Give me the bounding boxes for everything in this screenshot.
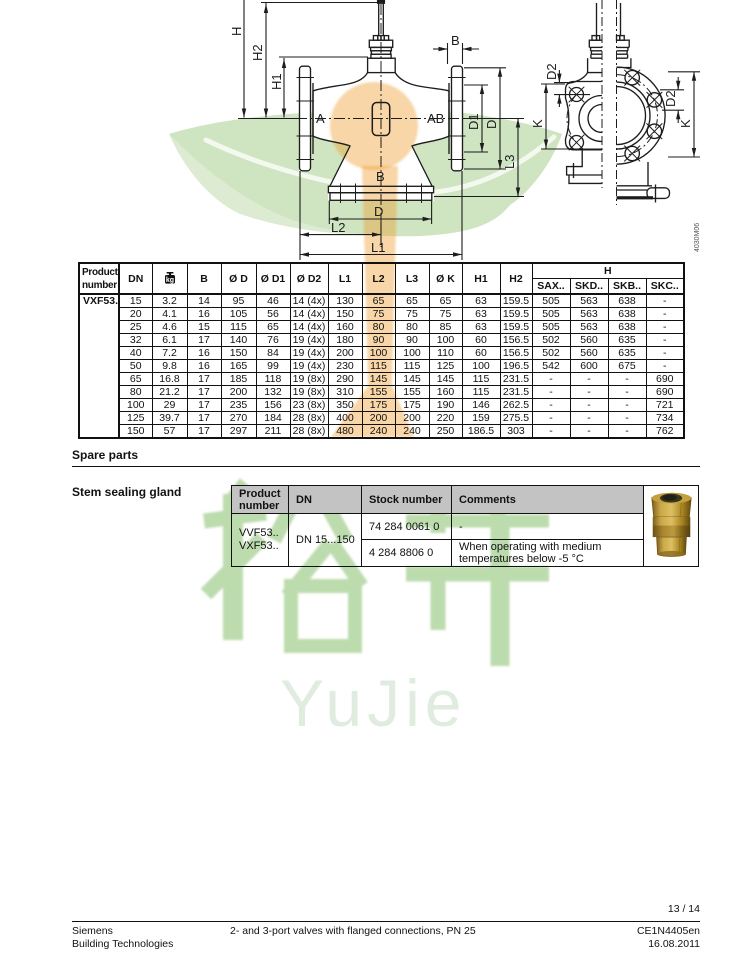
svg-text:K: K	[530, 119, 545, 128]
svg-text:H2: H2	[250, 44, 265, 61]
svg-text:B: B	[451, 33, 460, 48]
svg-text:kg: kg	[165, 276, 173, 283]
svg-text:D2: D2	[663, 90, 678, 107]
svg-text:AB: AB	[427, 111, 444, 126]
svg-text:D: D	[374, 204, 383, 219]
svg-text:L3: L3	[502, 155, 517, 169]
svg-text:H1: H1	[269, 73, 284, 90]
svg-text:D: D	[484, 120, 499, 129]
svg-text:D2: D2	[544, 63, 559, 80]
svg-text:4030M06: 4030M06	[694, 223, 701, 252]
svg-text:B: B	[376, 169, 385, 184]
svg-text:A: A	[316, 111, 325, 126]
svg-text:L1: L1	[371, 240, 385, 255]
svg-text:D1: D1	[466, 113, 481, 130]
svg-text:K: K	[678, 119, 693, 128]
svg-text:YuJie: YuJie	[280, 666, 466, 740]
svg-text:H: H	[229, 27, 244, 36]
svg-text:L2: L2	[331, 220, 345, 235]
